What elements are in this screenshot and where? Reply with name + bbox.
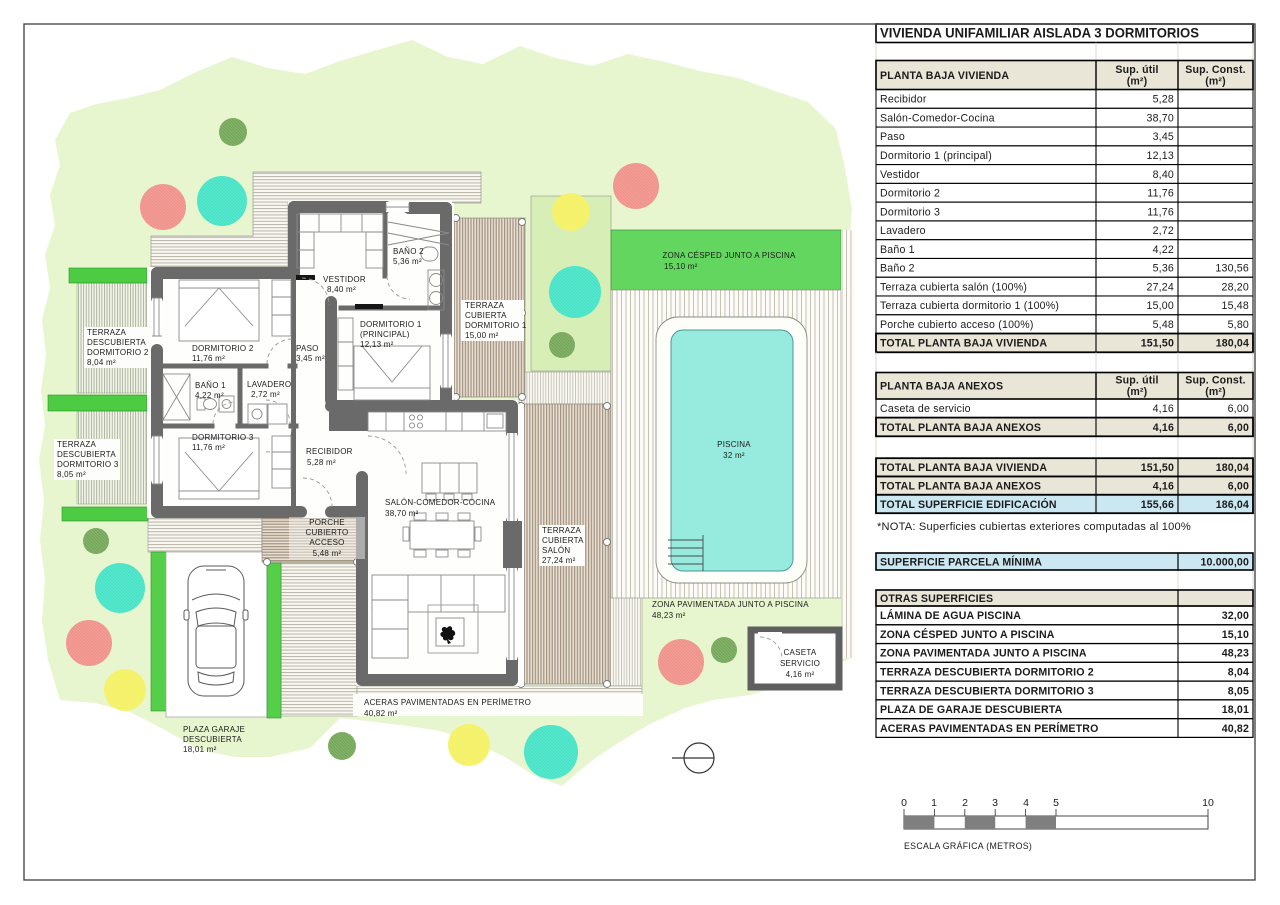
svg-text:Dormitorio 1 (principal): Dormitorio 1 (principal) <box>880 150 992 162</box>
svg-text:Recibidor: Recibidor <box>880 94 927 106</box>
svg-text:32,00: 32,00 <box>1222 610 1249 622</box>
svg-text:4,22: 4,22 <box>1153 244 1174 256</box>
svg-text:TOTAL PLANTA BAJA ANEXOS: TOTAL PLANTA BAJA ANEXOS <box>880 480 1041 492</box>
svg-text:DESCUBIERTA: DESCUBIERTA <box>87 338 146 347</box>
svg-text:2,72 m²: 2,72 m² <box>251 390 280 399</box>
svg-text:4,16 m²: 4,16 m² <box>786 670 815 679</box>
svg-text:ZONA CÉSPED JUNTO A PISCINA: ZONA CÉSPED JUNTO A PISCINA <box>662 251 796 260</box>
svg-text:Lavadero: Lavadero <box>880 225 926 237</box>
svg-text:PLAZA GARAJE: PLAZA GARAJE <box>183 725 245 734</box>
svg-text:Paso: Paso <box>880 131 905 143</box>
svg-text:(m²): (m²) <box>1127 386 1148 398</box>
svg-text:32 m²: 32 m² <box>723 451 745 460</box>
svg-text:ESCALA GRÁFICA (METROS): ESCALA GRÁFICA (METROS) <box>904 841 1032 851</box>
svg-text:Baño 1: Baño 1 <box>880 244 915 256</box>
svg-text:PISCINA: PISCINA <box>717 440 751 449</box>
svg-text:2: 2 <box>962 797 968 809</box>
svg-text:40,82: 40,82 <box>1222 723 1249 735</box>
svg-text:ACERAS PAVIMENTADAS EN PERÍMET: ACERAS PAVIMENTADAS EN PERÍMETRO <box>364 698 531 707</box>
svg-text:Baño 2: Baño 2 <box>880 263 915 275</box>
svg-text:15,10: 15,10 <box>1222 629 1249 641</box>
svg-text:180,04: 180,04 <box>1216 338 1249 350</box>
svg-text:SALÓN-COMEDOR-COCINA: SALÓN-COMEDOR-COCINA <box>385 498 496 507</box>
svg-text:(PRINCIPAL): (PRINCIPAL) <box>360 330 410 339</box>
svg-text:11,76: 11,76 <box>1147 188 1174 200</box>
svg-text:155,66: 155,66 <box>1141 499 1174 511</box>
svg-text:Sup. Const.: Sup. Const. <box>1185 375 1246 387</box>
svg-text:38,70: 38,70 <box>1146 112 1174 124</box>
svg-text:TOTAL PLANTA BAJA ANEXOS: TOTAL PLANTA BAJA ANEXOS <box>880 422 1041 434</box>
svg-text:3,45 m²: 3,45 m² <box>296 354 325 363</box>
svg-text:18,01 m²: 18,01 m² <box>183 745 217 754</box>
svg-text:PLAZA DE GARAJE DESCUBIERTA: PLAZA DE GARAJE DESCUBIERTA <box>880 704 1063 716</box>
svg-text:8,40 m²: 8,40 m² <box>327 285 356 294</box>
svg-text:3: 3 <box>992 797 998 809</box>
svg-text:TERRAZA: TERRAZA <box>87 328 127 337</box>
svg-text:CUBIERTO: CUBIERTO <box>305 528 348 537</box>
svg-text:PORCHE: PORCHE <box>309 518 345 527</box>
svg-text:ZONA PAVIMENTADA JUNTO A PISCI: ZONA PAVIMENTADA JUNTO A PISCINA <box>652 600 809 609</box>
svg-text:11,76 m²: 11,76 m² <box>192 354 225 363</box>
svg-text:5,28: 5,28 <box>1153 94 1174 106</box>
svg-text:5,48: 5,48 <box>1153 319 1174 331</box>
svg-text:CUBIERTA: CUBIERTA <box>465 311 507 320</box>
svg-text:15,48: 15,48 <box>1221 300 1249 312</box>
svg-text:Salón-Comedor-Cocina: Salón-Comedor-Cocina <box>880 112 995 124</box>
svg-text:Sup. útil: Sup. útil <box>1115 64 1158 76</box>
svg-text:18,01: 18,01 <box>1222 704 1249 716</box>
svg-text:5,36: 5,36 <box>1153 263 1174 275</box>
svg-text:ZONA CÉSPED JUNTO A PISCINA: ZONA CÉSPED JUNTO A PISCINA <box>880 628 1055 641</box>
svg-text:ACCESO: ACCESO <box>309 538 344 547</box>
svg-text:8,40: 8,40 <box>1153 169 1174 181</box>
svg-text:DORMITORIO 3: DORMITORIO 3 <box>57 460 119 469</box>
svg-text:VESTIDOR: VESTIDOR <box>323 275 366 284</box>
svg-text:VIVIENDA UNIFAMILIAR AISLADA 3: VIVIENDA UNIFAMILIAR AISLADA 3 DORMITORI… <box>880 26 1199 41</box>
svg-text:4: 4 <box>1023 797 1029 809</box>
svg-text:DORMITORIO 2: DORMITORIO 2 <box>87 348 149 357</box>
svg-text:151,50: 151,50 <box>1141 338 1174 350</box>
svg-text:28,20: 28,20 <box>1221 281 1249 293</box>
svg-text:8,04: 8,04 <box>1228 666 1249 678</box>
svg-text:5: 5 <box>1053 797 1059 809</box>
svg-text:48,23: 48,23 <box>1222 648 1249 660</box>
svg-text:Caseta de servicio: Caseta de servicio <box>880 403 971 415</box>
svg-text:TERRAZA: TERRAZA <box>542 526 582 535</box>
svg-text:PLANTA BAJA ANEXOS: PLANTA BAJA ANEXOS <box>880 381 1003 393</box>
svg-text:3,45: 3,45 <box>1153 131 1174 143</box>
svg-text:15,00: 15,00 <box>1146 300 1174 312</box>
svg-text:DORMITORIO 1: DORMITORIO 1 <box>465 321 527 330</box>
svg-text:5,80: 5,80 <box>1228 319 1249 331</box>
svg-text:DESCUBIERTA: DESCUBIERTA <box>57 450 116 459</box>
svg-text:180,04: 180,04 <box>1216 462 1249 474</box>
svg-text:130,56: 130,56 <box>1215 263 1249 275</box>
svg-text:4,16: 4,16 <box>1153 422 1174 434</box>
svg-text:SERVICIO: SERVICIO <box>780 659 820 668</box>
svg-text:1: 1 <box>931 797 937 809</box>
svg-text:TOTAL SUPERFICIE EDIFICACIÓN: TOTAL SUPERFICIE EDIFICACIÓN <box>880 498 1057 511</box>
svg-text:Vestidor: Vestidor <box>880 169 920 181</box>
svg-text:LÁMINA DE AGUA PISCINA: LÁMINA DE AGUA PISCINA <box>880 609 1021 622</box>
svg-text:LAVADERO: LAVADERO <box>247 380 291 389</box>
svg-text:ZONA PAVIMENTADA JUNTO A PISCI: ZONA PAVIMENTADA JUNTO A PISCINA <box>880 648 1087 660</box>
svg-text:TERRAZA DESCUBIERTA DORMITORIO: TERRAZA DESCUBIERTA DORMITORIO 2 <box>880 666 1094 678</box>
svg-text:4,16: 4,16 <box>1153 480 1174 492</box>
svg-text:5,36 m²: 5,36 m² <box>393 257 422 266</box>
svg-text:(m²): (m²) <box>1205 386 1226 398</box>
svg-text:CUBIERTA: CUBIERTA <box>542 536 584 545</box>
svg-text:8,05 m²: 8,05 m² <box>57 470 86 479</box>
svg-text:TERRAZA: TERRAZA <box>57 440 97 449</box>
svg-text:10.000,00: 10.000,00 <box>1201 557 1249 569</box>
svg-text:Terraza cubierta dormitorio 1: Terraza cubierta dormitorio 1 (100%) <box>880 300 1059 312</box>
svg-text:4,22 m²: 4,22 m² <box>195 391 224 400</box>
svg-text:6,00: 6,00 <box>1228 480 1249 492</box>
svg-text:PASO: PASO <box>296 344 319 353</box>
svg-text:27,24: 27,24 <box>1146 281 1174 293</box>
svg-text:11,76: 11,76 <box>1147 206 1174 218</box>
svg-text:5,48 m²: 5,48 m² <box>313 549 342 558</box>
svg-text:186,04: 186,04 <box>1216 499 1249 511</box>
svg-text:8,05: 8,05 <box>1228 685 1249 697</box>
svg-text:27,24 m²: 27,24 m² <box>542 556 576 565</box>
svg-text:15,10 m²: 15,10 m² <box>664 262 698 271</box>
svg-text:DORMITORIO 3: DORMITORIO 3 <box>192 433 254 442</box>
svg-text:Porche cubierto acceso (100%): Porche cubierto acceso (100%) <box>880 319 1034 331</box>
svg-text:SUPERFICIE PARCELA MÍNIMA: SUPERFICIE PARCELA MÍNIMA <box>880 556 1042 569</box>
svg-text:2,72: 2,72 <box>1153 225 1174 237</box>
svg-text:151,50: 151,50 <box>1141 462 1174 474</box>
svg-text:4,16: 4,16 <box>1153 403 1174 415</box>
svg-text:11,76 m²: 11,76 m² <box>192 443 225 452</box>
svg-text:TERRAZA: TERRAZA <box>465 301 505 310</box>
svg-text:5,28 m²: 5,28 m² <box>307 458 336 467</box>
svg-text:BAÑO 2: BAÑO 2 <box>393 247 424 256</box>
svg-text:SALÓN: SALÓN <box>542 546 570 555</box>
svg-text:DORMITORIO 1: DORMITORIO 1 <box>360 320 422 329</box>
svg-text:12,13: 12,13 <box>1146 150 1174 162</box>
svg-text:TOTAL PLANTA BAJA VIVIENDA: TOTAL PLANTA BAJA VIVIENDA <box>880 338 1047 350</box>
svg-text:TOTAL PLANTA BAJA VIVIENDA: TOTAL PLANTA BAJA VIVIENDA <box>880 462 1047 474</box>
svg-text:(m²): (m²) <box>1127 75 1148 87</box>
svg-text:TERRAZA DESCUBIERTA DORMITORIO: TERRAZA DESCUBIERTA DORMITORIO 3 <box>880 685 1094 697</box>
svg-text:8,04 m²: 8,04 m² <box>87 358 116 367</box>
svg-text:RECIBIDOR: RECIBIDOR <box>306 447 353 456</box>
svg-text:DESCUBIERTA: DESCUBIERTA <box>183 735 242 744</box>
svg-text:10: 10 <box>1202 797 1214 809</box>
svg-text:38,70 m²: 38,70 m² <box>385 509 419 518</box>
svg-text:PLANTA BAJA VIVIENDA: PLANTA BAJA VIVIENDA <box>880 70 1009 82</box>
svg-text:12,13 m²: 12,13 m² <box>360 340 394 349</box>
svg-text:BAÑO 1: BAÑO 1 <box>195 381 226 390</box>
svg-text:Sup. útil: Sup. útil <box>1115 375 1158 387</box>
svg-text:OTRAS SUPERFICIES: OTRAS SUPERFICIES <box>880 593 993 605</box>
svg-text:DORMITORIO 2: DORMITORIO 2 <box>192 344 254 353</box>
svg-text:0: 0 <box>901 797 907 809</box>
svg-text:48,23 m²: 48,23 m² <box>652 611 686 620</box>
svg-text:(m²): (m²) <box>1205 75 1226 87</box>
svg-text:Sup. Const.: Sup. Const. <box>1185 64 1246 76</box>
svg-text:15,00 m²: 15,00 m² <box>465 331 499 340</box>
svg-text:CASETA: CASETA <box>784 648 817 657</box>
svg-text:Dormitorio 2: Dormitorio 2 <box>880 188 940 200</box>
svg-text:6,00: 6,00 <box>1228 403 1249 415</box>
svg-text:Dormitorio 3: Dormitorio 3 <box>880 206 940 218</box>
svg-text:ACERAS PAVIMENTADAS EN PERÍMET: ACERAS PAVIMENTADAS EN PERÍMETRO <box>880 722 1098 735</box>
svg-text:6,00: 6,00 <box>1228 422 1249 434</box>
svg-text:*NOTA: Superficies cubiertas e: *NOTA: Superficies cubiertas exteriores … <box>877 521 1191 533</box>
svg-text:40,82 m²: 40,82 m² <box>364 709 398 718</box>
svg-text:Terraza cubierta salón (100%): Terraza cubierta salón (100%) <box>880 281 1027 293</box>
